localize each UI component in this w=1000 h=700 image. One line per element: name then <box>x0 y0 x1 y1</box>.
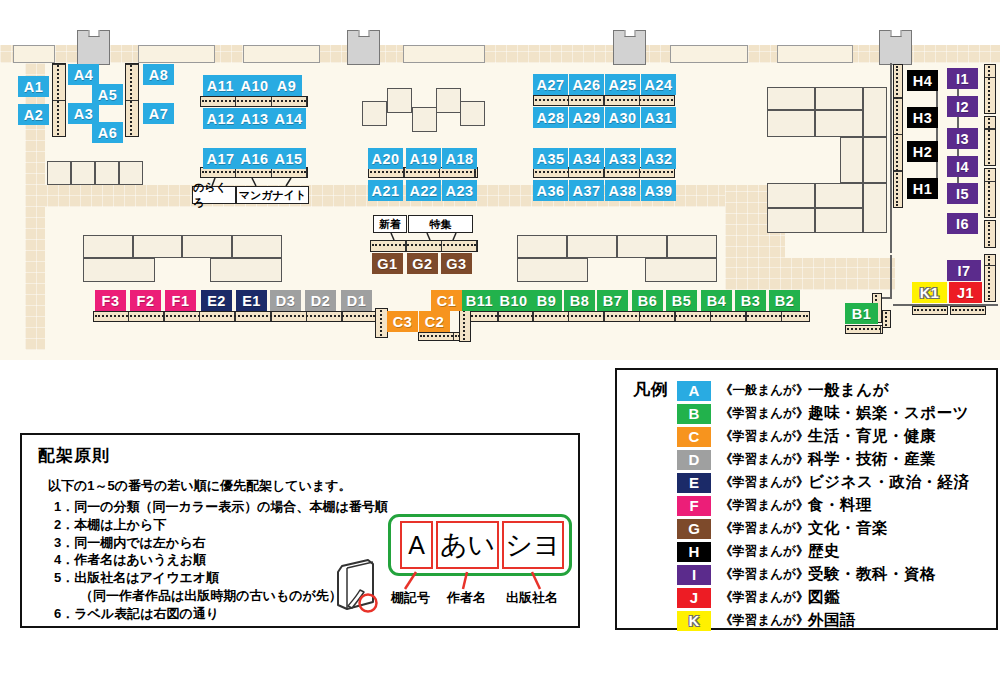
reading-table <box>767 110 815 137</box>
reading-table <box>83 258 155 282</box>
reading-table <box>567 235 617 258</box>
shelf-tag-I7: I7 <box>947 260 981 281</box>
legend-type: 《学習まんが》 <box>720 405 808 422</box>
legend-type: 《学習まんが》 <box>720 612 808 629</box>
shelf-tag-A8: A8 <box>143 64 174 85</box>
callout-manga-night: マンガナイト <box>236 186 309 204</box>
legend-type: 《学習まんが》 <box>720 566 808 583</box>
reading-table <box>815 110 863 137</box>
shelf-tag-H1: H1 <box>907 178 938 199</box>
reading-table <box>863 137 887 183</box>
shelf-tag-H3: H3 <box>907 107 938 128</box>
shelf-tag-A25: A25 <box>605 74 640 95</box>
shelf-tag-A21: A21 <box>368 180 403 201</box>
shelf-tag-A22: A22 <box>406 180 441 201</box>
shelf-tag-D3: D3 <box>270 290 301 311</box>
reading-table <box>460 101 485 126</box>
bookshelf <box>912 306 948 315</box>
legend-chip-B: B <box>677 404 711 424</box>
reading-table <box>617 235 667 258</box>
shelf-tag-F2: F2 <box>130 290 161 311</box>
shelf-tag-A10: A10 <box>237 75 272 96</box>
bookshelf <box>370 240 478 252</box>
shelf-tag-A19: A19 <box>406 148 441 169</box>
shelf-tag-A20: A20 <box>368 148 403 169</box>
shelf-tag-A3: A3 <box>68 103 99 124</box>
shelf-tag-A4: A4 <box>68 64 99 85</box>
legend-category-label: 食・料理 <box>808 495 872 516</box>
legend-type: 《一般まんが》 <box>720 382 808 399</box>
legend-category-label: 文化・音楽 <box>808 518 888 539</box>
legend-type: 《学習まんが》 <box>720 543 808 560</box>
shelf-tag-I3: I3 <box>947 128 978 149</box>
label-shelf-code-box: A <box>400 521 433 569</box>
shelf-tag-F1: F1 <box>165 290 196 311</box>
shelf-tag-B9: B9 <box>531 290 562 311</box>
legend-type: 《学習まんが》 <box>720 474 808 491</box>
label-author-box: あい <box>436 521 499 569</box>
bookshelf <box>984 168 996 218</box>
wall-line <box>936 80 938 192</box>
legend-category-label: 一般まんが <box>808 380 889 401</box>
reading-table <box>645 258 717 282</box>
bookshelf <box>418 332 462 341</box>
wall-window <box>403 45 485 63</box>
shelf-tag-A15: A15 <box>271 148 306 169</box>
legend-type: 《学習まんが》 <box>720 497 808 514</box>
legend-panel: 凡例 A《一般まんが》一般まんがB《学習まんが》趣味・娯楽・スポーツC《学習まん… <box>615 368 998 630</box>
shelf-tag-B8: B8 <box>564 290 595 311</box>
legend-category-label: 歴史 <box>808 541 840 562</box>
legend-type: 《学習まんが》 <box>720 451 808 468</box>
legend-row-K: K《学習まんが》外国語 <box>677 610 856 631</box>
bookshelf <box>984 254 996 302</box>
reading-table <box>133 235 182 258</box>
shelf-tag-A5: A5 <box>92 84 123 105</box>
reading-table <box>863 87 887 137</box>
principles-item: 6．ラベル表記は右図の通り <box>54 605 388 623</box>
principles-intro: 以下の1～5の番号の若い順に優先配架しています。 <box>48 477 352 495</box>
reading-table <box>47 161 71 185</box>
pillar <box>77 30 110 65</box>
shelf-tag-A31: A31 <box>641 107 676 128</box>
reading-table <box>767 208 815 233</box>
reading-table <box>232 235 282 258</box>
caption-publisher: 出版社名 <box>506 589 558 607</box>
reading-table <box>210 258 282 282</box>
principles-item: 5．出版社名はアイウエオ順 <box>54 569 388 587</box>
principles-item: 1．同一の分類（同一カラー表示）の場合、本棚は番号順 <box>54 498 388 516</box>
shelf-tag-B10: B10 <box>496 290 531 311</box>
reading-table <box>840 137 863 183</box>
legend-row-D: D《学習まんが》科学・技術・産業 <box>677 449 936 470</box>
legend-row-I: I《学習まんが》受験・教科・資格 <box>677 564 936 585</box>
bookshelf <box>882 310 891 328</box>
shelf-tag-A35: A35 <box>533 148 568 169</box>
bookshelf <box>459 308 471 342</box>
shelf-tag-I2: I2 <box>947 96 978 117</box>
principles-item: 4．作者名はあいうえお順 <box>54 551 388 569</box>
legend-row-J: J《学習まんが》図鑑 <box>677 587 840 608</box>
wall-window <box>777 45 853 63</box>
reading-table <box>182 235 232 258</box>
reading-table <box>667 235 717 258</box>
caption-shelf-code: 棚記号 <box>391 589 430 607</box>
bookshelf <box>200 96 308 107</box>
shelf-tag-G2: G2 <box>407 253 438 274</box>
bookshelf <box>984 116 996 166</box>
shelf-tag-A12: A12 <box>203 108 238 129</box>
legend-chip-G: G <box>677 519 711 539</box>
shelf-tag-A11: A11 <box>203 75 238 96</box>
wall-window <box>138 45 215 63</box>
shelf-tag-K1: K1 <box>912 282 947 303</box>
shelf-tag-A36: A36 <box>533 180 568 201</box>
legend-category-label: 生活・育児・健康 <box>808 426 936 447</box>
reading-table <box>387 88 412 113</box>
bookshelf <box>52 63 66 137</box>
bookshelf <box>984 220 996 248</box>
shelf-tag-I4: I4 <box>947 156 978 177</box>
label-example: A あい シヨ <box>388 514 572 576</box>
shelf-tag-A26: A26 <box>569 74 604 95</box>
reading-table <box>362 101 387 126</box>
reading-table <box>815 87 863 110</box>
reading-table <box>517 258 588 282</box>
reading-table <box>412 107 437 132</box>
shelf-tag-I1: I1 <box>947 68 978 89</box>
shelf-tag-A30: A30 <box>605 107 640 128</box>
reading-table <box>863 183 887 233</box>
shelf-tag-A29: A29 <box>569 107 604 128</box>
shelf-tag-C3: C3 <box>387 311 418 332</box>
legend-category-label: 趣味・娯楽・スポーツ <box>808 403 969 424</box>
shelf-tag-G3: G3 <box>441 253 472 274</box>
reading-table <box>767 183 815 208</box>
shelf-tag-A23: A23 <box>442 180 477 201</box>
shelf-tag-A16: A16 <box>237 148 272 169</box>
wall-window <box>13 45 55 63</box>
pillar <box>879 30 912 65</box>
shelf-tag-A33: A33 <box>605 148 640 169</box>
legend-category-label: 科学・技術・産業 <box>808 449 936 470</box>
shelf-tag-B1: B1 <box>845 303 878 324</box>
legend-chip-K: K <box>677 611 711 631</box>
shelf-tag-A28: A28 <box>533 107 568 128</box>
legend-category-label: 外国語 <box>808 610 856 631</box>
callout-norakuro: のらくろ <box>192 186 236 204</box>
legend-title: 凡例 <box>633 378 669 401</box>
caption-author: 作者名 <box>447 589 486 607</box>
shelf-tag-I6: I6 <box>947 213 978 234</box>
legend-row-E: E《学習まんが》ビジネス・政治・経済 <box>677 472 969 493</box>
legend-chip-I: I <box>677 565 711 585</box>
shelf-tag-B7: B7 <box>597 290 628 311</box>
shelf-tag-C2: C2 <box>419 311 450 332</box>
principles-item: 2．本棚は上から下 <box>54 516 388 534</box>
shelf-tag-A6: A6 <box>92 122 123 143</box>
shelf-tag-B5: B5 <box>666 290 697 311</box>
legend-chip-D: D <box>677 450 711 470</box>
shelf-tag-A1: A1 <box>18 76 49 97</box>
shelf-tag-G1: G1 <box>372 253 403 274</box>
shelf-tag-A38: A38 <box>605 180 640 201</box>
bookshelf <box>893 64 903 208</box>
bookshelf <box>462 311 810 322</box>
shelf-tag-B6: B6 <box>632 290 663 311</box>
principles-list: 1．同一の分類（同一カラー表示）の場合、本棚は番号順2．本棚は上から下3．同一棚… <box>54 498 388 623</box>
shelf-tag-A24: A24 <box>641 74 676 95</box>
label-publisher-box: シヨ <box>502 521 564 569</box>
legend-chip-C: C <box>677 427 711 447</box>
wall-window <box>670 45 748 63</box>
legend-chip-H: H <box>677 542 711 562</box>
walkway <box>725 258 895 290</box>
legend-chip-F: F <box>677 496 711 516</box>
legend-type: 《学習まんが》 <box>720 589 808 606</box>
legend-row-G: G《学習まんが》文化・音楽 <box>677 518 888 539</box>
shelf-tag-B11: B11 <box>462 290 497 311</box>
pillar <box>347 30 380 65</box>
legend-row-H: H《学習まんが》歴史 <box>677 541 840 562</box>
shelf-tag-H2: H2 <box>907 141 938 162</box>
callout-tokushu: 特集 <box>408 215 473 233</box>
shelf-tag-A2: A2 <box>18 104 49 125</box>
shelf-tag-A32: A32 <box>641 148 676 169</box>
shelf-tag-A18: A18 <box>442 148 477 169</box>
principles-title: 配架原則 <box>38 444 110 467</box>
shelf-tag-B2: B2 <box>769 290 800 311</box>
shelf-tag-F3: F3 <box>95 290 126 311</box>
shelf-tag-A34: A34 <box>569 148 604 169</box>
shelf-tag-A17: A17 <box>203 148 238 169</box>
wall-line <box>890 255 892 299</box>
wall-window <box>243 45 320 63</box>
reading-table <box>71 161 95 185</box>
shelf-tag-E1: E1 <box>236 290 267 311</box>
pillar <box>613 30 646 65</box>
shelf-tag-A37: A37 <box>569 180 604 201</box>
callout-shinchaku: 新着 <box>373 215 407 233</box>
reading-table <box>436 88 461 113</box>
legend-chip-A: A <box>677 381 711 401</box>
legend-category-label: 受験・教科・資格 <box>808 564 936 585</box>
legend-chip-J: J <box>677 588 711 608</box>
bookshelf <box>984 64 996 114</box>
legend-row-B: B《学習まんが》趣味・娯楽・スポーツ <box>677 403 969 424</box>
principles-item: （同一作者作品は出版時期の古いものが先） <box>54 587 388 605</box>
legend-type: 《学習まんが》 <box>720 428 808 445</box>
reading-table <box>119 161 143 185</box>
legend-row-C: C《学習まんが》生活・育児・健康 <box>677 426 936 447</box>
shelf-tag-B4: B4 <box>701 290 732 311</box>
shelf-tag-D1: D1 <box>341 290 372 311</box>
wall-line <box>890 63 892 253</box>
principles-item: 3．同一棚内では左から右 <box>54 534 388 552</box>
shelf-tag-A13: A13 <box>237 108 272 129</box>
bookshelf <box>93 311 377 322</box>
shelf-tag-H4: H4 <box>907 70 938 91</box>
reading-table <box>83 235 133 258</box>
legend-row-F: F《学習まんが》食・料理 <box>677 495 872 516</box>
shelf-tag-J1: J1 <box>949 282 982 303</box>
bookshelf <box>845 325 883 334</box>
shelf-tag-I5: I5 <box>947 183 978 204</box>
shelf-tag-A14: A14 <box>271 108 306 129</box>
shelf-tag-E2: E2 <box>201 290 232 311</box>
shelf-tag-A7: A7 <box>143 103 174 124</box>
shelf-tag-D2: D2 <box>305 290 336 311</box>
bookshelf <box>533 95 675 106</box>
reading-table <box>815 208 863 233</box>
legend-type: 《学習まんが》 <box>720 520 808 537</box>
legend-category-label: 図鑑 <box>808 587 840 608</box>
reading-table <box>517 235 567 258</box>
shelf-tag-C1: C1 <box>431 290 462 311</box>
shelf-tag-A39: A39 <box>641 180 676 201</box>
reading-table <box>95 161 119 185</box>
legend-chip-E: E <box>677 473 711 493</box>
bookshelf <box>950 306 986 315</box>
legend-row-A: A《一般まんが》一般まんが <box>677 380 889 401</box>
reading-table <box>767 87 815 110</box>
shelf-tag-B3: B3 <box>735 290 766 311</box>
shelf-tag-A9: A9 <box>271 75 302 96</box>
legend-category-label: ビジネス・政治・経済 <box>808 472 969 493</box>
reading-table <box>815 183 863 208</box>
bookshelf <box>125 63 139 137</box>
shelf-tag-A27: A27 <box>533 74 568 95</box>
